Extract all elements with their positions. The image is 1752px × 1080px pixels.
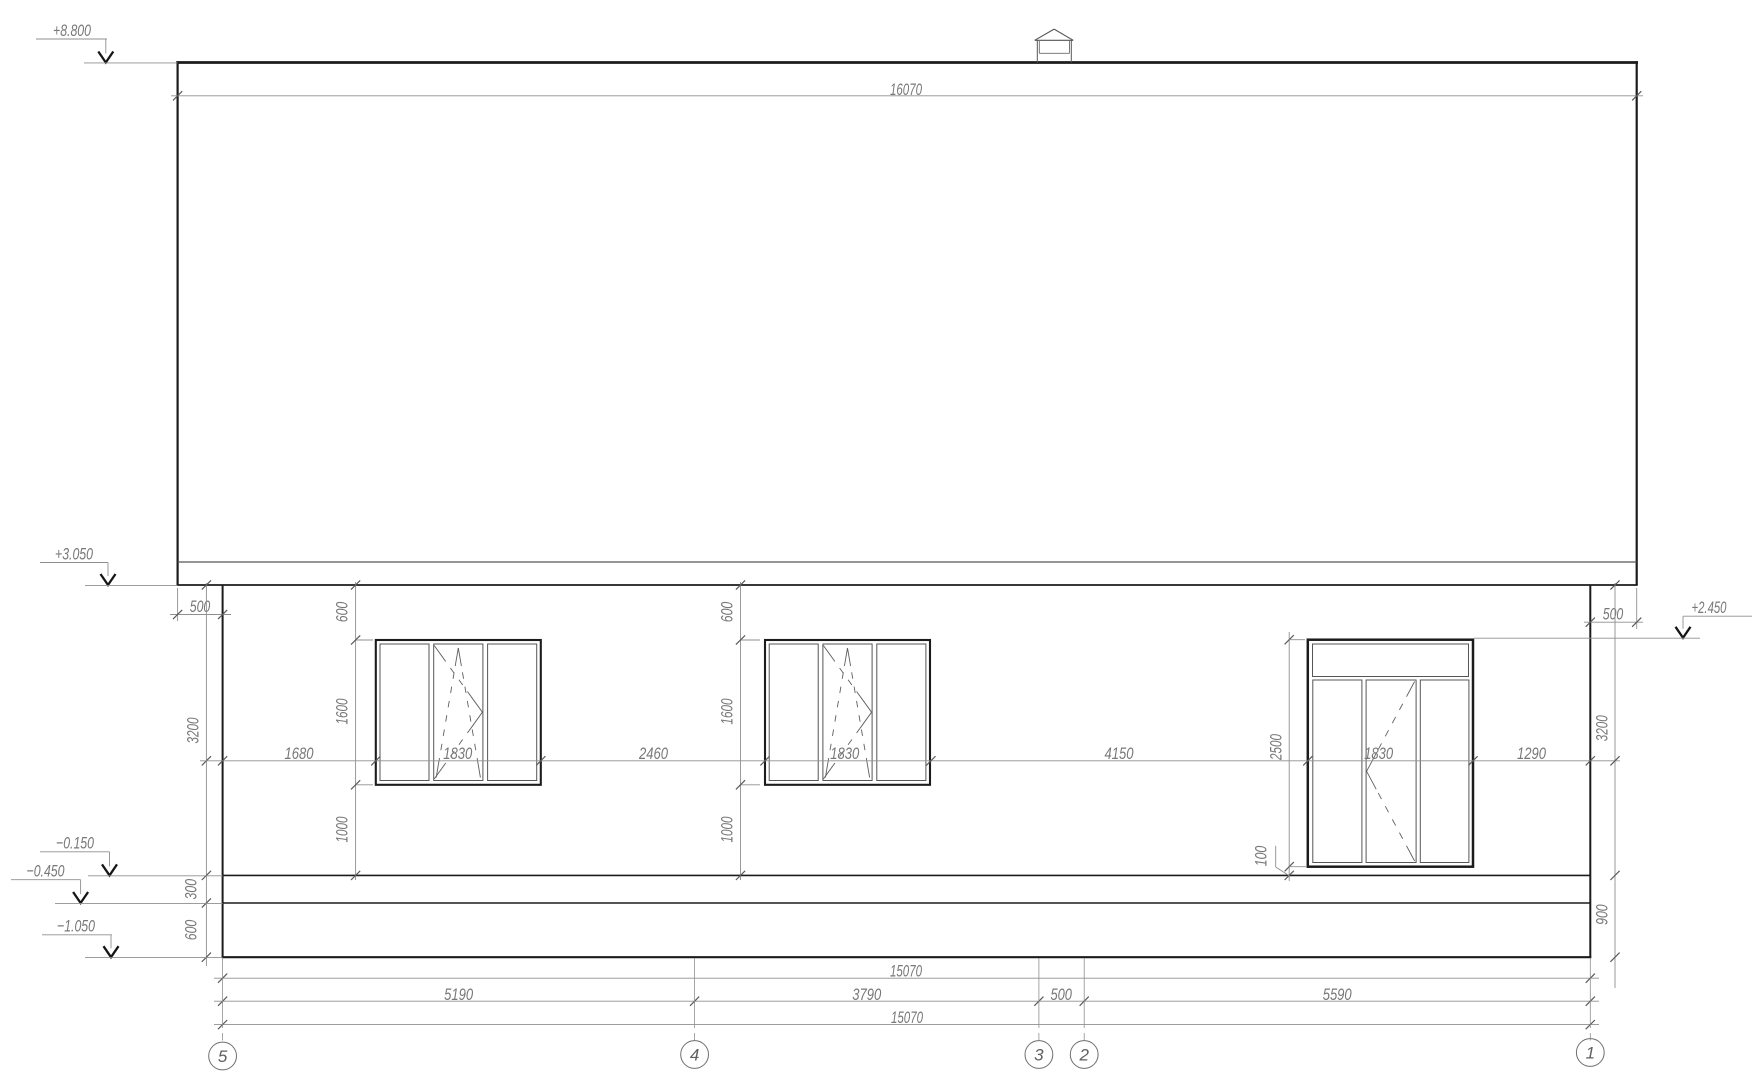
svg-text:300: 300: [182, 879, 201, 900]
svg-text:1680: 1680: [285, 744, 314, 763]
svg-text:600: 600: [718, 601, 737, 622]
svg-text:500: 500: [1050, 985, 1072, 1004]
svg-text:1830: 1830: [443, 744, 472, 763]
svg-text:2460: 2460: [638, 744, 668, 763]
svg-text:1: 1: [1586, 1044, 1595, 1063]
svg-text:1600: 1600: [333, 698, 352, 724]
svg-text:4: 4: [690, 1046, 699, 1065]
svg-text:15070: 15070: [890, 962, 922, 981]
svg-text:+3.050: +3.050: [55, 544, 93, 563]
svg-text:3: 3: [1034, 1046, 1044, 1065]
svg-text:3200: 3200: [184, 717, 203, 743]
svg-text:1830: 1830: [1364, 744, 1393, 763]
svg-text:+8.800: +8.800: [53, 21, 91, 40]
svg-text:2: 2: [1078, 1046, 1089, 1065]
svg-text:900: 900: [1593, 904, 1612, 925]
svg-text:500: 500: [1603, 605, 1624, 624]
svg-text:−0.450: −0.450: [27, 862, 65, 881]
svg-text:3200: 3200: [1593, 715, 1612, 741]
svg-text:5590: 5590: [1323, 985, 1352, 1004]
svg-text:15070: 15070: [891, 1008, 923, 1027]
svg-text:1000: 1000: [333, 816, 352, 842]
svg-text:1830: 1830: [830, 744, 859, 763]
svg-text:1600: 1600: [718, 698, 737, 724]
svg-text:+2.450: +2.450: [1692, 598, 1727, 617]
svg-text:2500: 2500: [1267, 734, 1286, 761]
svg-text:5190: 5190: [444, 985, 473, 1004]
svg-text:3790: 3790: [852, 985, 881, 1004]
svg-text:100: 100: [1252, 845, 1271, 866]
svg-text:500: 500: [190, 597, 211, 616]
svg-text:−1.050: −1.050: [57, 917, 95, 936]
svg-text:600: 600: [182, 919, 201, 940]
svg-text:−0.150: −0.150: [56, 834, 94, 853]
svg-text:1290: 1290: [1517, 744, 1546, 763]
svg-text:4150: 4150: [1105, 744, 1134, 763]
svg-text:1000: 1000: [718, 816, 737, 842]
svg-text:16070: 16070: [890, 80, 922, 99]
svg-text:5: 5: [218, 1047, 228, 1066]
svg-text:600: 600: [333, 601, 352, 622]
